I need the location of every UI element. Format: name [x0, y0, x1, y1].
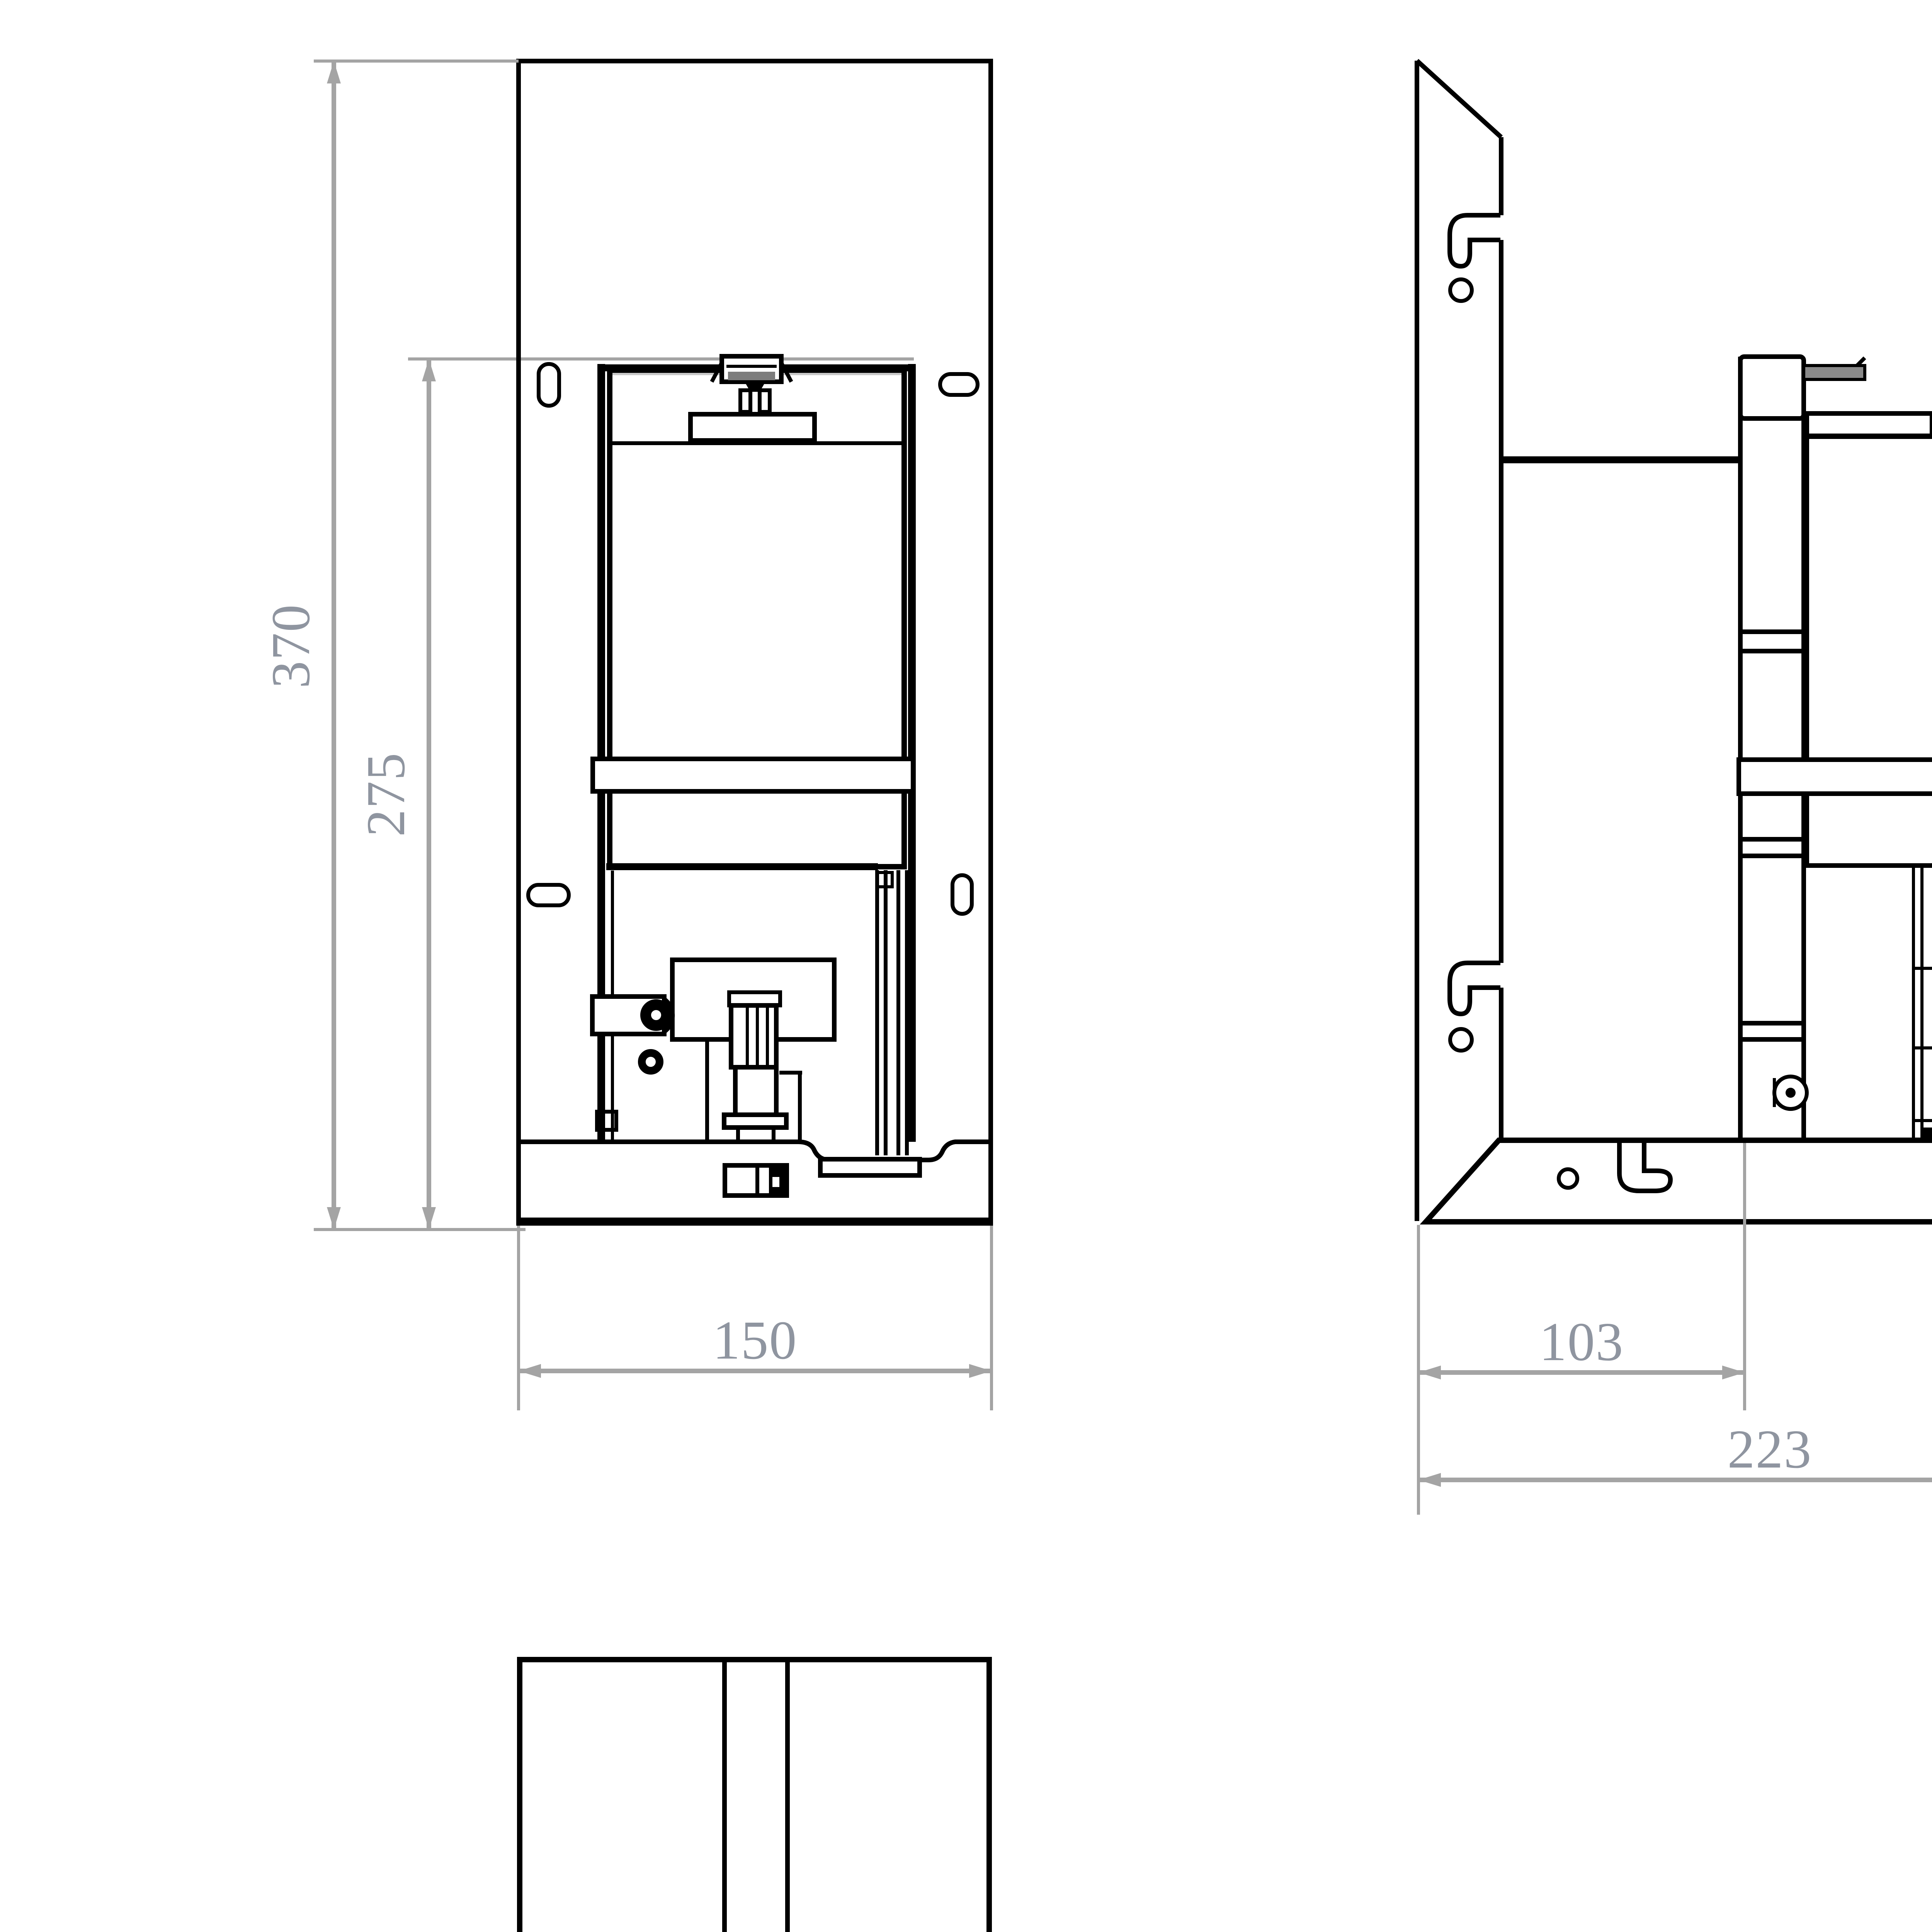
arrow-150-left: [519, 1364, 541, 1378]
dimension-103-label: 103: [1539, 1311, 1624, 1372]
column-screw-center: [1786, 1088, 1796, 1098]
slot-top-left: [539, 364, 559, 406]
screw-leg-left: [740, 390, 750, 412]
dimension-275-label: 275: [355, 752, 416, 837]
column-top-bracket: [1740, 357, 1804, 418]
tube-foot: [820, 1159, 920, 1175]
base-plate-side: [1426, 1140, 1932, 1222]
piston-upper: [731, 1005, 776, 1067]
screw-leg-right: [760, 390, 770, 412]
arrow-150-right: [969, 1364, 992, 1378]
wall-slot-hole-upper: [1450, 279, 1472, 301]
cross-band: [593, 759, 913, 791]
dimensions: 370 275 150 103 223: [260, 61, 1932, 1515]
piston-lower: [735, 1067, 776, 1116]
slot-top-right: [940, 374, 978, 395]
dimension-150-label: 150: [713, 1310, 798, 1371]
wall-top-chamfer: [1417, 61, 1501, 137]
wall-slot-hole-lower: [1450, 1029, 1472, 1051]
bracket-screw-lower: [642, 1053, 660, 1071]
technical-drawing-page: 370 275 150 103 223: [0, 0, 1932, 1932]
wall-keyhole-slot-upper: [1450, 215, 1500, 266]
clamp-pad: [728, 372, 775, 380]
arrow-370-top: [327, 61, 341, 83]
cross-band-side: [1739, 760, 1932, 794]
dimension-370-label: 370: [260, 604, 321, 689]
slot-mid-left: [528, 885, 569, 905]
bottom-view: [520, 1660, 989, 1932]
arrow-103-right: [1722, 1366, 1745, 1379]
dispenser-mounting-drawing: 370 275 150 103 223: [0, 0, 1932, 1932]
front-view: [408, 61, 991, 1223]
wall-keyhole-slot-lower: [1450, 963, 1500, 1014]
arrow-223-left: [1418, 1473, 1441, 1487]
arrow-275-top: [422, 359, 436, 381]
tank-side: [1807, 437, 1932, 866]
block-side: [1807, 413, 1932, 436]
dimension-223-label: 223: [1728, 1418, 1812, 1480]
clamp-hook-side: [1804, 366, 1865, 379]
tank-top-block: [690, 414, 815, 440]
bottom-outline: [520, 1660, 989, 1932]
connector-notch: [772, 1177, 779, 1187]
side-view: [1417, 61, 1932, 1222]
piston-flange: [724, 1115, 786, 1128]
arrow-103-left: [1418, 1366, 1441, 1379]
slot-mid-right: [952, 875, 972, 914]
side-tube-foot: [1921, 1128, 1932, 1140]
arrow-370-bottom: [327, 1207, 341, 1230]
arrow-275-bottom: [422, 1207, 436, 1230]
